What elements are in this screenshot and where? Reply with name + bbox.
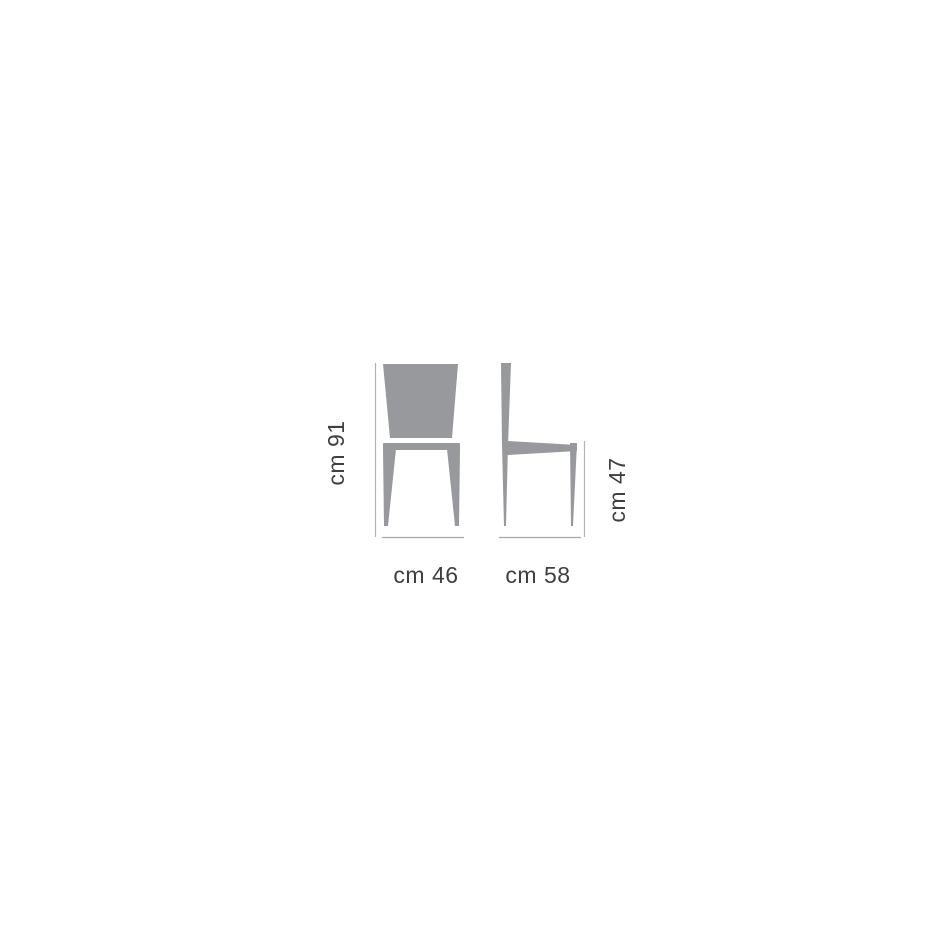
chair-side-view (499, 363, 585, 538)
diagram-svg: cm 91 cm 47 cm 46 cm 58 (0, 0, 950, 950)
seat-height-dimension-label: cm 47 (604, 457, 630, 522)
depth-dimension-label: cm 58 (505, 562, 570, 588)
side-seat (507, 441, 577, 455)
side-front-leg (570, 443, 577, 526)
chair-front-view (376, 363, 465, 538)
chair-dimension-diagram: cm 91 cm 47 cm 46 cm 58 (0, 0, 950, 950)
width-dimension-label: cm 46 (393, 562, 458, 588)
front-seat (383, 443, 460, 450)
height-dimension-label: cm 91 (323, 420, 349, 485)
front-backrest (383, 364, 458, 438)
front-left-leg (383, 449, 396, 526)
front-right-leg (447, 449, 460, 526)
